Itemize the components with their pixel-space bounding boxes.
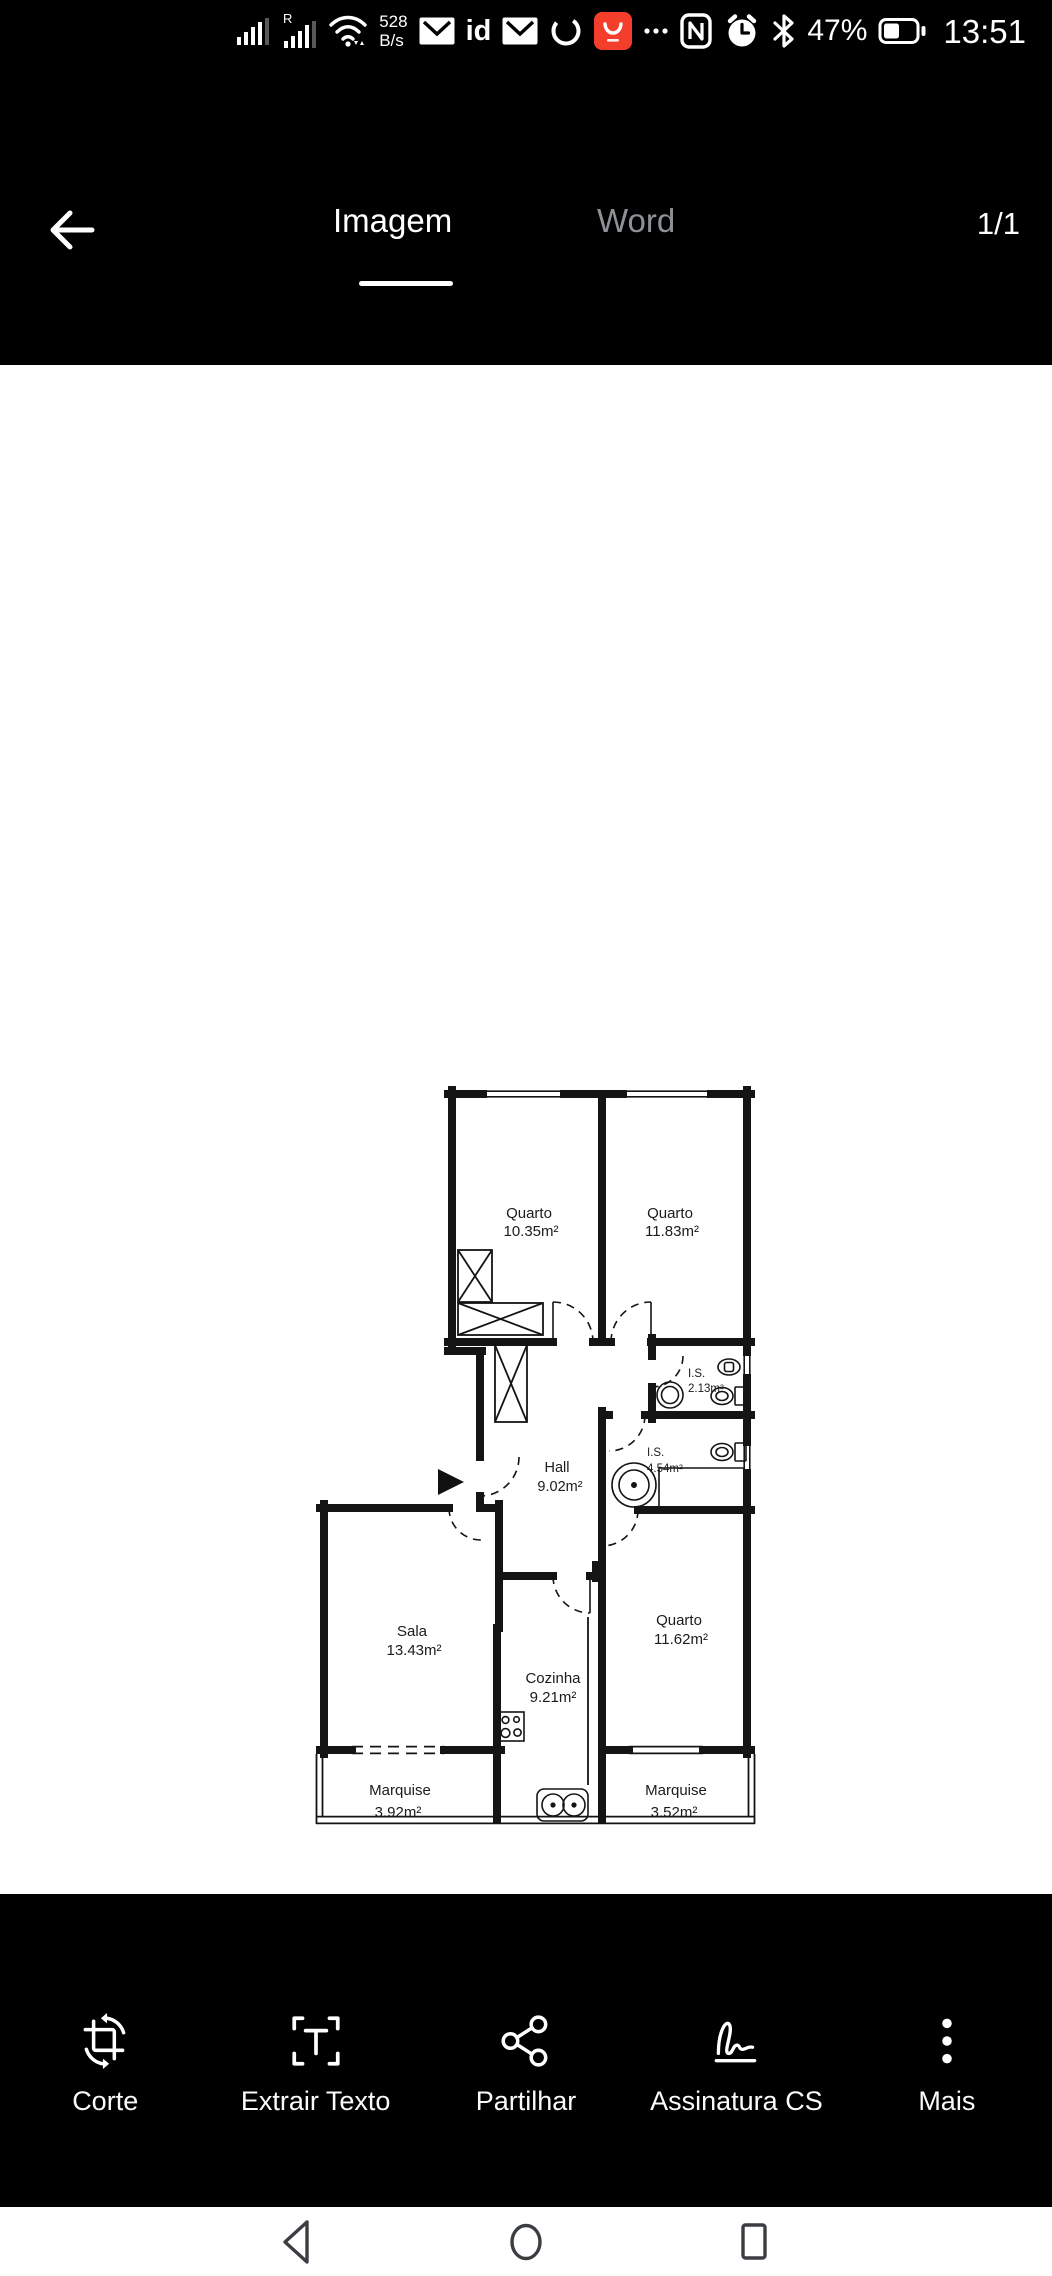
room-area: 10.35m²	[503, 1223, 558, 1240]
document-header: Imagem Word 1/1	[0, 62, 1052, 365]
room-area: 11.62m²	[654, 1631, 708, 1648]
back-button[interactable]	[42, 200, 102, 260]
signal-roaming-icon: R	[281, 11, 317, 51]
battery-icon	[878, 17, 926, 45]
signature-icon	[707, 2012, 765, 2070]
bottom-toolbar: Corte Extrair Texto Partilhar	[0, 1894, 1052, 2207]
room-label: Hall	[545, 1460, 570, 1476]
room-area: 3.92m²	[375, 1804, 422, 1821]
wifi-icon	[328, 13, 368, 49]
nav-recents-button[interactable]	[726, 2214, 782, 2270]
signature-button[interactable]: Assinatura CS	[631, 1894, 841, 2207]
room-label: Marquise	[369, 1782, 431, 1799]
screen: R 528 B/s id	[0, 0, 1052, 2276]
room-area: 3.52m²	[651, 1804, 698, 1821]
ellipsis-icon	[643, 26, 669, 36]
room-area: 11.83m²	[645, 1223, 699, 1240]
toilet-icon	[711, 1444, 733, 1461]
crop-label: Corte	[72, 2086, 138, 2117]
android-nav-bar	[0, 2207, 1052, 2276]
signature-label: Assinatura CS	[650, 2086, 823, 2117]
extract-text-icon	[287, 2012, 345, 2070]
room-label: I.S.	[688, 1368, 705, 1380]
tab-word-label: Word	[597, 202, 675, 239]
entrance-arrow-icon	[438, 1469, 464, 1495]
signal-icon	[236, 14, 270, 48]
home-icon	[501, 2216, 551, 2268]
active-tab-underline	[359, 281, 453, 286]
sync-ring-icon	[549, 14, 583, 48]
room-label: Marquise	[645, 1782, 707, 1799]
clock: 13:51	[943, 15, 1026, 48]
room-label: Quarto	[656, 1612, 702, 1629]
mail-icon	[502, 17, 538, 45]
room-area: 2.13m²	[688, 1383, 724, 1395]
status-bar: R 528 B/s id	[0, 0, 1052, 62]
floor-plan-image[interactable]: Quarto 10.35m² Quarto 11.83m² I.S. 2.13m…	[300, 1055, 770, 1845]
room-area: 9.02m²	[537, 1479, 582, 1495]
share-label: Partilhar	[476, 2086, 577, 2117]
arrow-left-icon	[42, 200, 102, 260]
svg-text:R: R	[283, 11, 292, 26]
back-icon	[273, 2216, 323, 2268]
recents-icon	[729, 2216, 779, 2268]
room-area: 13.43m²	[386, 1642, 441, 1659]
share-icon	[497, 2012, 555, 2070]
bidet-icon	[718, 1359, 740, 1375]
nav-home-button[interactable]	[498, 2214, 554, 2270]
room-label: Sala	[397, 1623, 428, 1640]
mail-icon	[419, 17, 455, 45]
tab-word[interactable]: Word	[597, 204, 675, 237]
extract-text-button[interactable]: Extrair Texto	[210, 1894, 420, 2207]
room-label: Cozinha	[525, 1670, 581, 1687]
nav-back-button[interactable]	[270, 2214, 326, 2270]
more-label: Mais	[918, 2086, 975, 2117]
bluetooth-icon	[772, 12, 796, 50]
crop-button[interactable]: Corte	[0, 1894, 210, 2207]
share-button[interactable]: Partilhar	[421, 1894, 631, 2207]
room-area: 4.54m²	[647, 1463, 683, 1475]
crop-rotate-icon	[76, 2012, 134, 2070]
page-indicator: 1/1	[977, 206, 1020, 242]
shop-app-icon	[594, 12, 632, 50]
tab-imagem[interactable]: Imagem	[333, 204, 452, 237]
id-icon: id	[466, 17, 492, 46]
extract-text-label: Extrair Texto	[241, 2086, 391, 2117]
room-label: I.S.	[647, 1447, 664, 1459]
tab-imagem-label: Imagem	[333, 202, 452, 239]
room-area: 9.21m²	[530, 1689, 577, 1706]
document-canvas[interactable]: Quarto 10.35m² Quarto 11.83m² I.S. 2.13m…	[0, 365, 1052, 1894]
battery-percent: 47%	[807, 16, 867, 46]
more-icon	[918, 2012, 976, 2070]
network-speed: 528 B/s	[379, 12, 407, 50]
alarm-icon	[723, 12, 761, 50]
nfc-icon	[680, 13, 712, 49]
room-label: Quarto	[506, 1205, 552, 1222]
room-label: Quarto	[647, 1205, 693, 1222]
more-button[interactable]: Mais	[842, 1894, 1052, 2207]
